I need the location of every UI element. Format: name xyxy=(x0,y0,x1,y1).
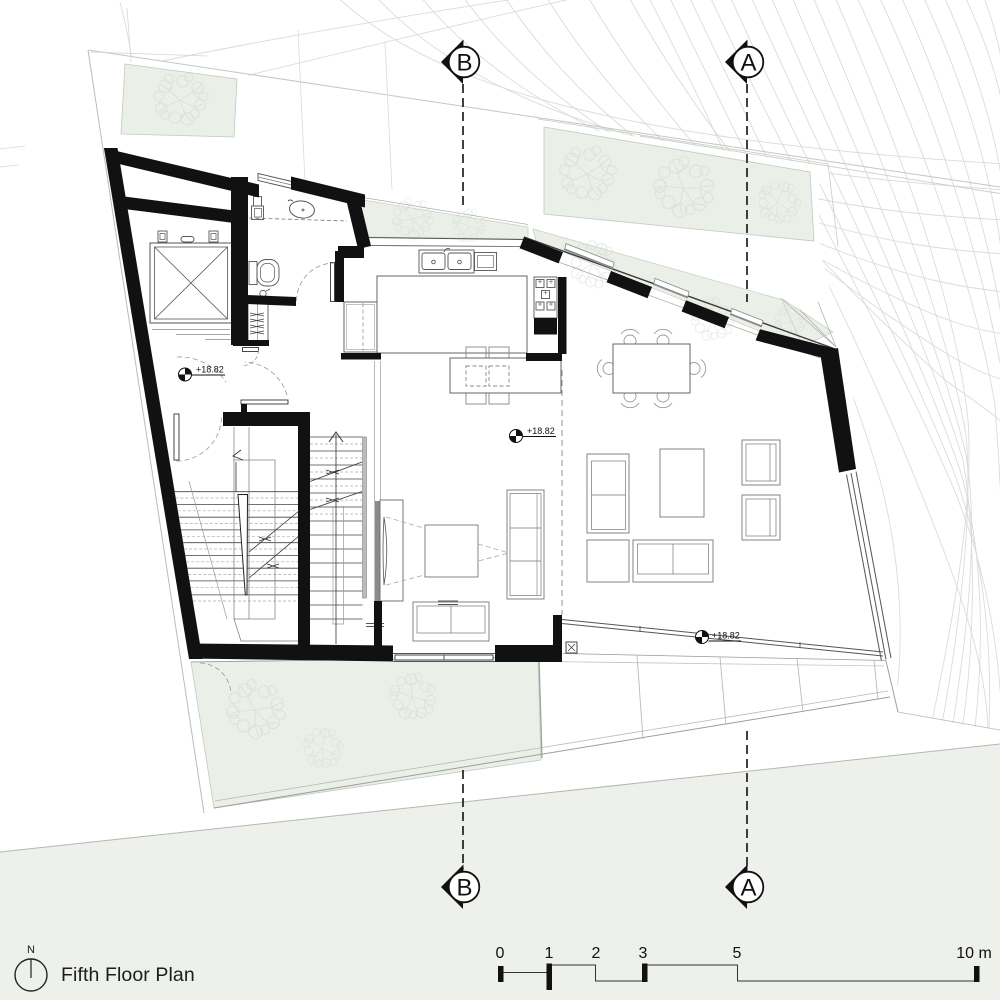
svg-text:A: A xyxy=(740,50,756,77)
svg-text:+18.82: +18.82 xyxy=(712,631,740,641)
svg-text:B: B xyxy=(456,875,472,902)
svg-text:N: N xyxy=(27,944,35,956)
svg-text:2: 2 xyxy=(592,945,601,962)
svg-text:10 m: 10 m xyxy=(956,945,992,962)
svg-text:1: 1 xyxy=(545,945,554,962)
svg-text:+18.82: +18.82 xyxy=(527,426,555,436)
svg-text:A: A xyxy=(740,875,756,902)
svg-text:B: B xyxy=(456,50,472,77)
svg-text:5: 5 xyxy=(733,945,742,962)
svg-text:+18.82: +18.82 xyxy=(196,365,224,375)
svg-text:3: 3 xyxy=(639,945,648,962)
svg-text:Fifth Floor Plan: Fifth Floor Plan xyxy=(61,964,195,986)
svg-text:0: 0 xyxy=(496,945,505,962)
